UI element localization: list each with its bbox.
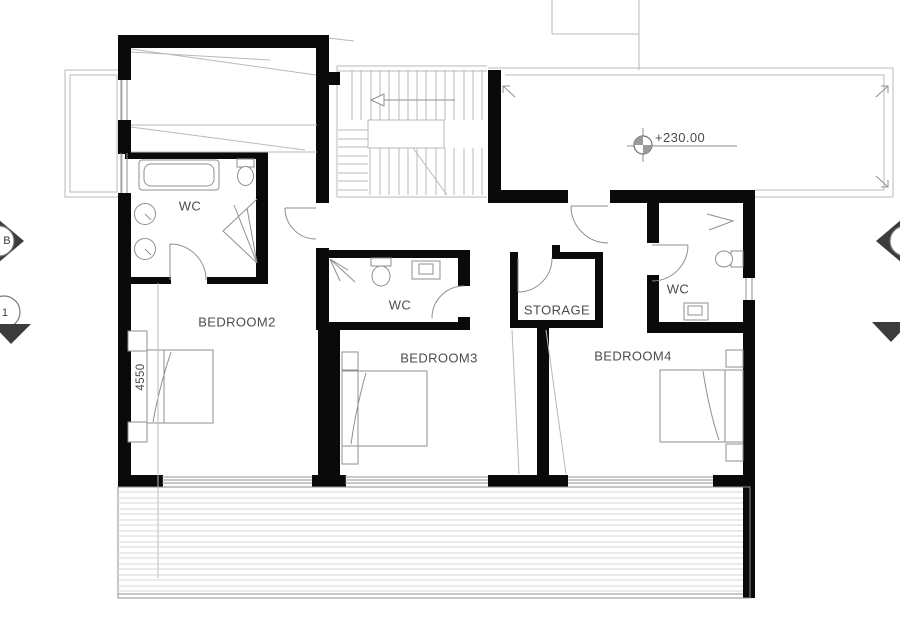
- elevation-marker-1-text: 1: [2, 307, 8, 319]
- shower-wc3-icon: [330, 259, 355, 282]
- drainage-arrow-top-left-icon: [503, 86, 515, 97]
- room-label-bedroom3: BEDROOM3: [400, 351, 478, 366]
- room-label-wc-master: WC: [179, 199, 201, 214]
- section-marker-b-text: B: [3, 235, 11, 247]
- room-label-bedroom4: BEDROOM4: [594, 349, 672, 364]
- room-label-storage: STORAGE: [524, 303, 590, 318]
- sink-wc4-icon: [684, 303, 708, 320]
- room-label-wc-bedroom3: WC: [389, 298, 411, 313]
- sink-master-1-icon: [135, 204, 156, 225]
- room-label-wc-bedroom4: WC: [667, 282, 689, 297]
- toilet-wc3-icon: [371, 258, 391, 286]
- shower-master-icon: [223, 199, 257, 263]
- floor-plan: BEDROOM2 BEDROOM3 BEDROOM4 STORAGE WC WC…: [0, 0, 900, 637]
- drainage-arrow-bottom-right-icon: [876, 176, 888, 187]
- floor-plan-drawing: [0, 0, 900, 637]
- bathtub-icon: [139, 160, 219, 190]
- dimension-text-4550: 4550: [135, 363, 147, 390]
- deck-terrace: [118, 487, 750, 598]
- sink-master-2-icon: [135, 239, 156, 260]
- sink-wc3-icon: [412, 261, 440, 279]
- bed-bedroom3: [342, 352, 427, 464]
- staircase: [337, 66, 487, 197]
- drainage-arrow-top-right-icon: [876, 86, 888, 97]
- elevation-marker-right: [872, 322, 900, 342]
- bed-bedroom4: [660, 350, 743, 461]
- section-marker-right: [876, 214, 900, 268]
- room-label-bedroom2: BEDROOM2: [198, 315, 276, 330]
- stair-direction-arrow-icon: [371, 94, 455, 106]
- toilet-master-icon: [237, 159, 254, 186]
- toilet-wc4-icon: [716, 251, 744, 267]
- elevation-marker-1-left: [0, 296, 31, 344]
- shower-arrow-wc4-icon: [707, 214, 733, 230]
- level-annotation: +230.00: [655, 130, 705, 145]
